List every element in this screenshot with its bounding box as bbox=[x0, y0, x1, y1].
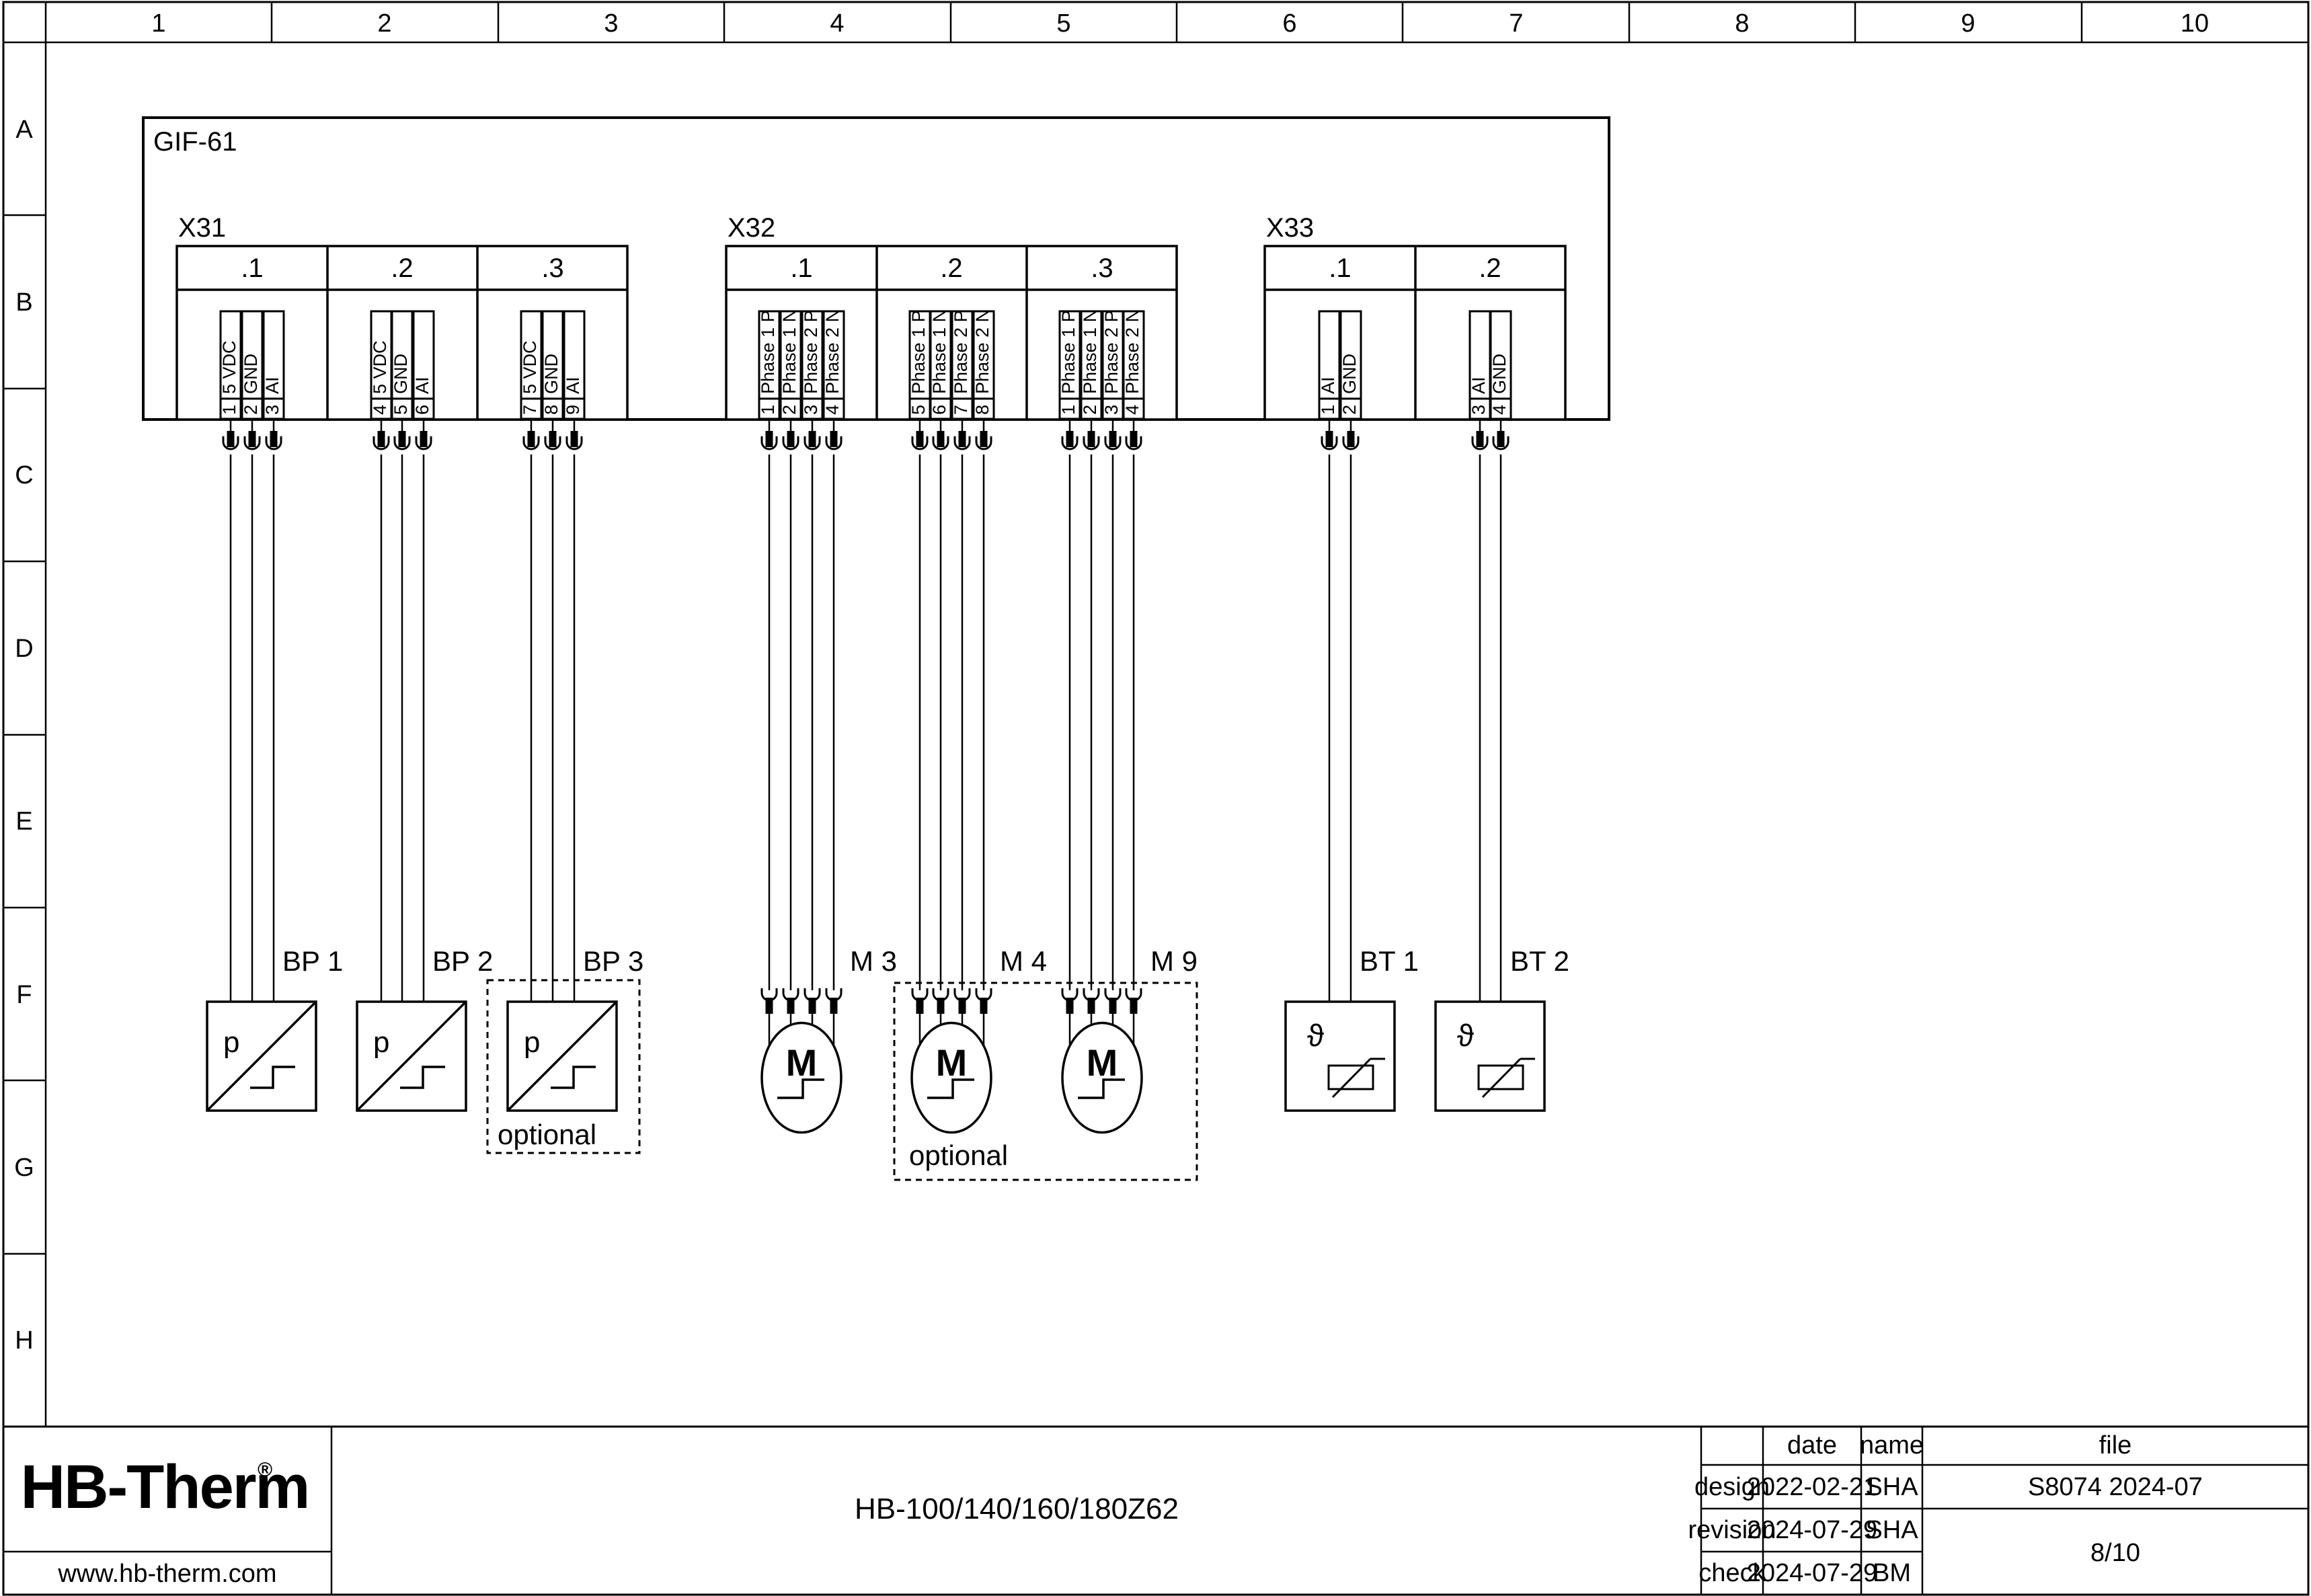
pin-x31-7: 5 VDC 7 bbox=[520, 311, 541, 419]
svg-text:4: 4 bbox=[822, 405, 843, 415]
revision-name: SHA bbox=[1865, 1516, 1918, 1544]
design-date: 2022-02-21 bbox=[1747, 1473, 1877, 1501]
revision-date: 2024-07-29 bbox=[1747, 1516, 1877, 1544]
registered-mark: ® bbox=[258, 1459, 272, 1481]
svg-text:Phase 2 P: Phase 2 P bbox=[801, 310, 821, 394]
group-label: .2 bbox=[940, 253, 962, 283]
svg-text:7: 7 bbox=[520, 405, 540, 415]
svg-text:1: 1 bbox=[1058, 405, 1079, 415]
plug-icon bbox=[805, 419, 820, 1030]
svg-text:Phase 2 N: Phase 2 N bbox=[972, 309, 992, 394]
motor-symbol: M bbox=[786, 1041, 818, 1084]
temperature-symbol: ϑ bbox=[1457, 1018, 1474, 1053]
svg-text:E: E bbox=[15, 807, 32, 836]
plug-icon bbox=[567, 419, 582, 1002]
svg-text:1: 1 bbox=[151, 9, 165, 38]
component-label: BP 1 bbox=[282, 945, 343, 977]
component-label: M 4 bbox=[1000, 945, 1047, 977]
plug-icon bbox=[1493, 419, 1508, 1002]
svg-text:Phase 1 N: Phase 1 N bbox=[1080, 309, 1100, 394]
motor-m3: M 3 M bbox=[762, 945, 897, 1133]
sensor-bp2: BP 2 p bbox=[357, 945, 493, 1111]
temperature-symbol: ϑ bbox=[1307, 1018, 1324, 1053]
pressure-symbol: p bbox=[524, 1026, 540, 1059]
sensor-bt2: BT 2 ϑ bbox=[1436, 945, 1569, 1111]
svg-text:AI: AI bbox=[1318, 376, 1338, 394]
plug-icon bbox=[416, 419, 431, 1002]
pin-x33-1: AI 1 bbox=[1318, 311, 1339, 419]
svg-text:B: B bbox=[15, 288, 32, 317]
svg-text:A: A bbox=[15, 116, 33, 144]
pin-x32-2: Phase 1 N 2 bbox=[779, 309, 801, 419]
svg-text:GND: GND bbox=[241, 354, 261, 394]
svg-text:AI: AI bbox=[563, 376, 583, 394]
sensor-bp1: BP 1 p bbox=[207, 945, 343, 1111]
pin-x31-8: GND 8 bbox=[541, 311, 563, 419]
website-text: www.hb-therm.com bbox=[57, 1560, 276, 1588]
svg-text:6: 6 bbox=[929, 405, 949, 415]
pin-x32-4: Phase 2 N 4 bbox=[822, 309, 844, 419]
pressure-symbol: p bbox=[223, 1026, 239, 1059]
svg-text:Phase 2 N: Phase 2 N bbox=[1122, 309, 1142, 394]
plug-icon bbox=[783, 419, 798, 1030]
svg-text:3: 3 bbox=[1468, 405, 1489, 415]
svg-text:4: 4 bbox=[370, 405, 390, 415]
plug-icon bbox=[1343, 419, 1358, 1002]
wires-x33 bbox=[1322, 419, 1508, 1002]
group-label: .2 bbox=[391, 253, 413, 283]
pin-x32-10: Phase 1 N 2 bbox=[1080, 309, 1101, 419]
company-logo: HB-Therm ® www.hb-therm.com bbox=[21, 1453, 309, 1588]
svg-text:C: C bbox=[15, 461, 33, 489]
plug-icon bbox=[1105, 419, 1120, 1030]
svg-text:GND: GND bbox=[1339, 354, 1360, 394]
pin-x32-8: Phase 2 N 8 bbox=[972, 309, 994, 419]
svg-text:1: 1 bbox=[758, 405, 778, 415]
svg-text:7: 7 bbox=[1509, 9, 1523, 38]
title-block: HB-Therm ® www.hb-therm.com HB-100/140/1… bbox=[3, 1427, 2308, 1595]
device-label: GIF-61 bbox=[153, 127, 237, 157]
group-label: .1 bbox=[790, 253, 812, 283]
plug-icon bbox=[912, 419, 927, 1049]
col-header-name: name bbox=[1860, 1431, 1924, 1460]
svg-text:3: 3 bbox=[801, 405, 821, 415]
group-label: .3 bbox=[1091, 253, 1113, 283]
component-label: M 3 bbox=[850, 945, 897, 977]
svg-text:9: 9 bbox=[563, 405, 583, 415]
component-label: BT 2 bbox=[1510, 945, 1569, 977]
plug-icon bbox=[524, 419, 539, 1002]
pin-x31-5: GND 5 bbox=[391, 311, 412, 419]
group-label: .2 bbox=[1479, 253, 1501, 283]
plug-icon bbox=[223, 419, 238, 1002]
plug-icon bbox=[266, 419, 281, 1002]
svg-text:4: 4 bbox=[830, 9, 844, 38]
svg-text:1: 1 bbox=[219, 405, 239, 415]
pin-x32-5: Phase 1 P 5 bbox=[908, 310, 930, 419]
drawing-title: HB-100/140/160/180Z62 bbox=[855, 1492, 1179, 1525]
optional-label: optional bbox=[498, 1119, 596, 1150]
column-ruler: 1 2 3 4 5 6 7 8 9 10 bbox=[151, 9, 2209, 38]
svg-text:6: 6 bbox=[1282, 9, 1296, 38]
svg-text:G: G bbox=[14, 1154, 34, 1182]
sensor-bt1: BT 1 ϑ bbox=[1286, 945, 1419, 1111]
pin-x32-11: Phase 2 P 3 bbox=[1101, 310, 1123, 419]
sensor-bp3: BP 3 p optional bbox=[487, 945, 643, 1153]
plug-icon bbox=[245, 419, 260, 1002]
svg-text:8: 8 bbox=[972, 405, 992, 415]
pin-x31-2: GND 2 bbox=[241, 311, 262, 419]
svg-text:10: 10 bbox=[2181, 9, 2209, 38]
connector-label: X33 bbox=[1266, 213, 1314, 243]
page-number: 8/10 bbox=[2090, 1539, 2140, 1567]
svg-text:Phase 1 P: Phase 1 P bbox=[758, 310, 778, 394]
svg-text:1: 1 bbox=[1318, 405, 1338, 415]
group-label: .1 bbox=[241, 253, 263, 283]
svg-text:5 VDC: 5 VDC bbox=[219, 340, 239, 394]
svg-text:Phase 1 P: Phase 1 P bbox=[1058, 310, 1079, 394]
motor-symbol: M bbox=[936, 1041, 968, 1084]
svg-text:Phase 1 N: Phase 1 N bbox=[929, 309, 949, 394]
svg-text:2: 2 bbox=[377, 9, 391, 38]
svg-text:4: 4 bbox=[1489, 405, 1510, 415]
svg-text:H: H bbox=[15, 1326, 33, 1355]
group-label: .1 bbox=[1329, 253, 1351, 283]
svg-text:3: 3 bbox=[604, 9, 618, 38]
svg-text:AI: AI bbox=[1468, 376, 1489, 394]
svg-text:5 VDC: 5 VDC bbox=[520, 340, 540, 394]
plug-icon bbox=[1126, 419, 1141, 1049]
svg-text:AI: AI bbox=[262, 376, 282, 394]
svg-text:Phase 1 N: Phase 1 N bbox=[779, 309, 799, 394]
pin-x31-6: AI 6 bbox=[412, 311, 434, 419]
svg-text:GND: GND bbox=[1489, 354, 1510, 394]
motor-symbol: M bbox=[1087, 1041, 1118, 1084]
svg-text:2: 2 bbox=[241, 405, 261, 415]
connector-label: X32 bbox=[728, 213, 775, 243]
motor-m9: M 9 M bbox=[1062, 945, 1198, 1133]
pin-x31-1: 5 VDC 1 bbox=[219, 311, 241, 419]
plug-icon bbox=[1084, 419, 1099, 1030]
plug-icon bbox=[1473, 419, 1487, 1002]
component-label: BT 1 bbox=[1360, 945, 1419, 977]
plug-icon bbox=[933, 419, 948, 1030]
pin-x32-3: Phase 2 P 3 bbox=[801, 310, 822, 419]
pin-x31-4: 5 VDC 4 bbox=[370, 311, 391, 419]
component-label: BP 2 bbox=[432, 945, 493, 977]
pin-x31-3: AI 3 bbox=[262, 311, 284, 419]
svg-text:4: 4 bbox=[1122, 405, 1142, 415]
svg-text:Phase 1 P: Phase 1 P bbox=[908, 310, 929, 394]
motor-m4: M 4 M bbox=[912, 945, 1047, 1133]
col-header-file: file bbox=[2099, 1431, 2132, 1460]
plug-icon bbox=[955, 419, 970, 1030]
design-name: SHA bbox=[1865, 1473, 1918, 1501]
schematic-sheet: 1 2 3 4 5 6 7 8 9 10 A B C D E F G H GIF… bbox=[0, 0, 2311, 1596]
plug-icon bbox=[374, 419, 389, 1002]
plug-icon bbox=[545, 419, 560, 1002]
svg-text:3: 3 bbox=[1101, 405, 1122, 415]
svg-text:GND: GND bbox=[541, 354, 561, 394]
pin-x32-6: Phase 1 N 6 bbox=[929, 309, 951, 419]
svg-text:5: 5 bbox=[391, 405, 411, 415]
svg-text:2: 2 bbox=[779, 405, 799, 415]
col-header-date: date bbox=[1787, 1431, 1837, 1460]
svg-text:5 VDC: 5 VDC bbox=[370, 340, 390, 394]
svg-text:7: 7 bbox=[951, 405, 971, 415]
pin-x33-4: GND 4 bbox=[1489, 311, 1511, 419]
component-label: M 9 bbox=[1150, 945, 1198, 977]
optional-label: optional bbox=[909, 1140, 1008, 1171]
pin-x32-12: Phase 2 N 4 bbox=[1122, 309, 1144, 419]
file-id: S8074 2024-07 bbox=[2028, 1473, 2203, 1501]
svg-text:8: 8 bbox=[1735, 9, 1749, 38]
pin-x33-3: AI 3 bbox=[1468, 311, 1490, 419]
svg-text:5: 5 bbox=[908, 405, 929, 415]
check-date: 2024-07-29 bbox=[1747, 1559, 1877, 1587]
pressure-symbol: p bbox=[373, 1026, 389, 1059]
plug-icon bbox=[826, 419, 841, 1049]
svg-text:9: 9 bbox=[1961, 9, 1975, 38]
plug-icon bbox=[1062, 419, 1077, 1049]
pin-x33-2: GND 2 bbox=[1339, 311, 1361, 419]
plug-icon bbox=[976, 419, 991, 1049]
svg-text:F: F bbox=[16, 981, 32, 1009]
plug-icon bbox=[762, 419, 777, 1049]
wires-x31 bbox=[223, 419, 582, 1002]
group-label: .3 bbox=[541, 253, 563, 283]
svg-text:2: 2 bbox=[1080, 405, 1100, 415]
pin-x31-9: AI 9 bbox=[563, 311, 584, 419]
svg-text:Phase 2 P: Phase 2 P bbox=[951, 310, 971, 394]
svg-text:Phase 2 N: Phase 2 N bbox=[822, 309, 843, 394]
svg-text:GND: GND bbox=[391, 354, 411, 394]
svg-text:D: D bbox=[15, 635, 33, 663]
svg-text:Phase 2 P: Phase 2 P bbox=[1101, 310, 1122, 394]
plug-icon bbox=[1322, 419, 1337, 1002]
svg-text:5: 5 bbox=[1056, 9, 1070, 38]
pin-x32-1: Phase 1 P 1 bbox=[758, 310, 779, 419]
svg-text:8: 8 bbox=[541, 405, 561, 415]
svg-text:AI: AI bbox=[412, 376, 432, 394]
connector-label: X31 bbox=[178, 213, 226, 243]
component-label: BP 3 bbox=[583, 945, 643, 977]
pin-x32-9: Phase 1 P 1 bbox=[1058, 310, 1080, 419]
svg-text:3: 3 bbox=[262, 405, 282, 415]
svg-text:2: 2 bbox=[1339, 405, 1360, 415]
pin-x32-7: Phase 2 P 7 bbox=[951, 310, 972, 419]
check-name: BM bbox=[1873, 1559, 1911, 1587]
wires-x32 bbox=[762, 419, 1141, 1049]
plug-icon bbox=[395, 419, 409, 1002]
svg-text:6: 6 bbox=[412, 405, 432, 415]
